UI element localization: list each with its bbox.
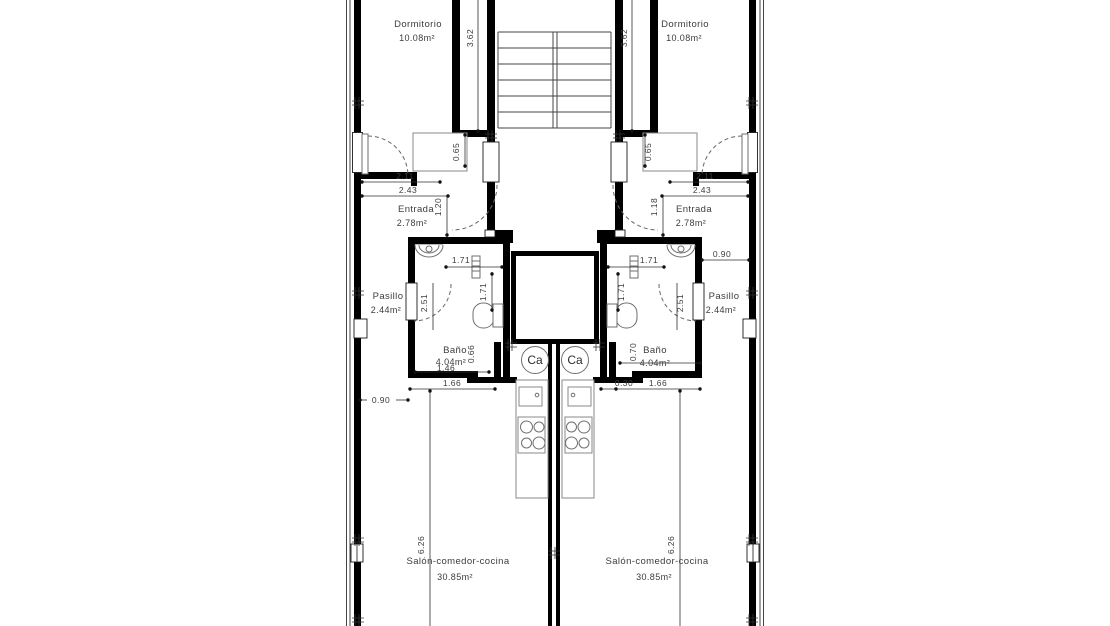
toilet-icon [473, 303, 503, 328]
room-area-entrada: 2.78m² [676, 218, 706, 228]
room-label-salon: Salón-comedor-cocina [605, 556, 708, 567]
floor-plan: Ca Ca [0, 0, 1110, 626]
room-area-dormitorio: 10.08m² [399, 33, 435, 43]
dim-hall-length: 2.51 [419, 294, 429, 312]
dim-wall-offset: 0.90 [372, 395, 390, 405]
dim-niche: 0.70 [628, 343, 638, 361]
room-area-salon: 30.85m² [636, 572, 672, 582]
room-area-bano: 4.04m² [640, 358, 670, 368]
boiler-right: Ca [562, 347, 589, 374]
dim-recess: 0.65 [451, 143, 461, 161]
dim-recess: 0.65 [643, 143, 653, 161]
stove-icon [518, 417, 545, 453]
stove-icon [565, 417, 592, 453]
dim-bath-width: 1.71 [452, 255, 470, 265]
room-label-dormitorio: Dormitorio [661, 19, 709, 30]
dim-niche: 0.66 [466, 345, 476, 363]
door-leaf-right [742, 134, 748, 174]
room-area-entrada: 2.78m² [397, 218, 427, 228]
boiler-label: Ca [567, 353, 583, 367]
labels-right-unit: Dormitorio 10.08m² Entrada 2.78m² Pasill… [605, 19, 739, 582]
dim-kitchen-front: 1.66 [443, 378, 461, 388]
dim-salon-length: 6.26 [416, 536, 426, 554]
dim-entry-w2: 2.43 [399, 185, 417, 195]
room-area-salon: 30.85m² [437, 572, 473, 582]
dim-bath-side: 1.71 [616, 283, 626, 301]
room-label-bano: Baño [643, 345, 667, 356]
kitchen-right [562, 380, 594, 498]
floor-plan-drawing: Ca Ca [0, 0, 1110, 626]
staircase [498, 32, 611, 128]
dim-entry-w2: 2.43 [693, 185, 711, 195]
kitchen-left [516, 380, 548, 498]
room-label-entrada: Entrada [676, 204, 712, 215]
boiler-left: Ca [522, 347, 549, 374]
sink-icon [667, 245, 695, 257]
room-label-salon: Salón-comedor-cocina [406, 556, 509, 567]
dim-bath-side: 1.71 [478, 283, 488, 301]
dim-kitchen-front: 1.66 [649, 378, 667, 388]
toilet-icon [607, 303, 637, 328]
dim-salon-length: 6.26 [666, 536, 676, 554]
room-label-entrada: Entrada [398, 204, 434, 215]
dim-entry-w1: 2.11 [696, 171, 714, 181]
dim-strip: 0.30 [615, 378, 633, 388]
door-leaf-left [362, 134, 368, 174]
room-label-pasillo: Pasillo [373, 291, 404, 302]
room-area-pasillo: 2.44m² [371, 305, 401, 315]
room-label-pasillo: Pasillo [709, 291, 740, 302]
dim-hall-width: 0.90 [713, 249, 731, 259]
boiler-label: Ca [527, 353, 543, 367]
dim-stair-side: 3.62 [619, 29, 629, 47]
dim-entry-depth: 1.20 [433, 198, 443, 216]
room-area-dormitorio: 10.08m² [666, 33, 702, 43]
dim-bath-inner: 1.46 [437, 363, 455, 373]
sink-icon [415, 245, 443, 257]
dim-hall-length: 2.51 [675, 294, 685, 312]
dim-entry-depth: 1.18 [649, 198, 659, 216]
room-label-dormitorio: Dormitorio [394, 19, 442, 30]
room-label-bano: Baño [443, 345, 467, 356]
dim-stair-side: 3.62 [465, 29, 475, 47]
room-area-pasillo: 2.44m² [706, 305, 736, 315]
dim-bath-width: 1.71 [640, 255, 658, 265]
dim-entry-w1: 2.11 [396, 171, 414, 181]
light-shaft [514, 254, 597, 342]
